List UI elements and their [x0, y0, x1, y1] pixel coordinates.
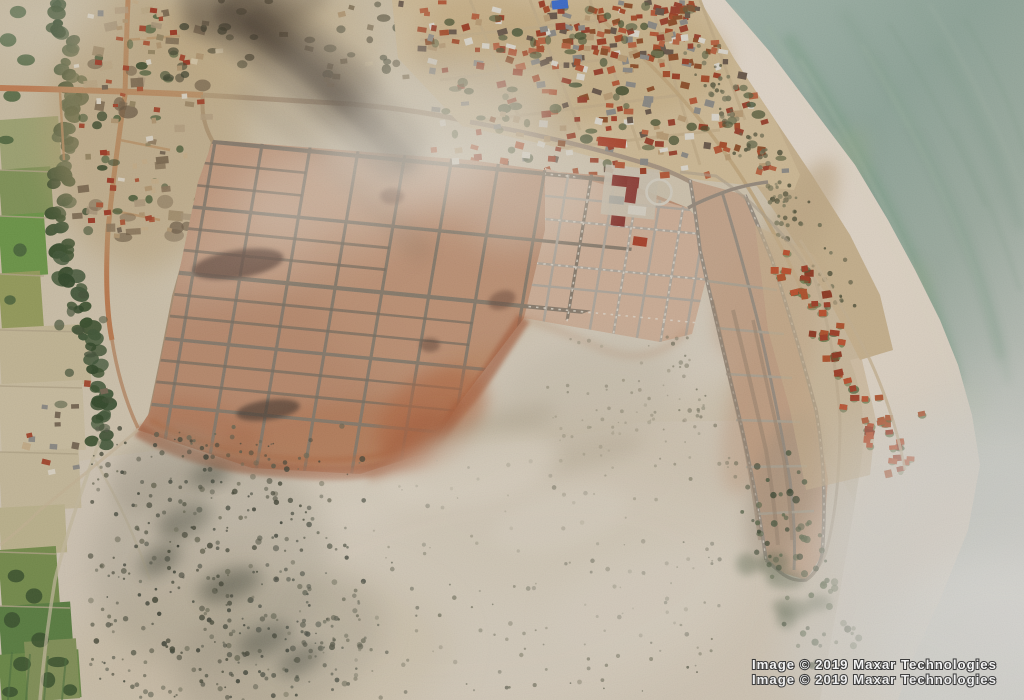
svg-text:Image © 2019 Maxar Technologie: Image © 2019 Maxar Technologies [752, 672, 997, 687]
svg-text:Image © 2019 Maxar Technologie: Image © 2019 Maxar Technologies [752, 657, 997, 672]
